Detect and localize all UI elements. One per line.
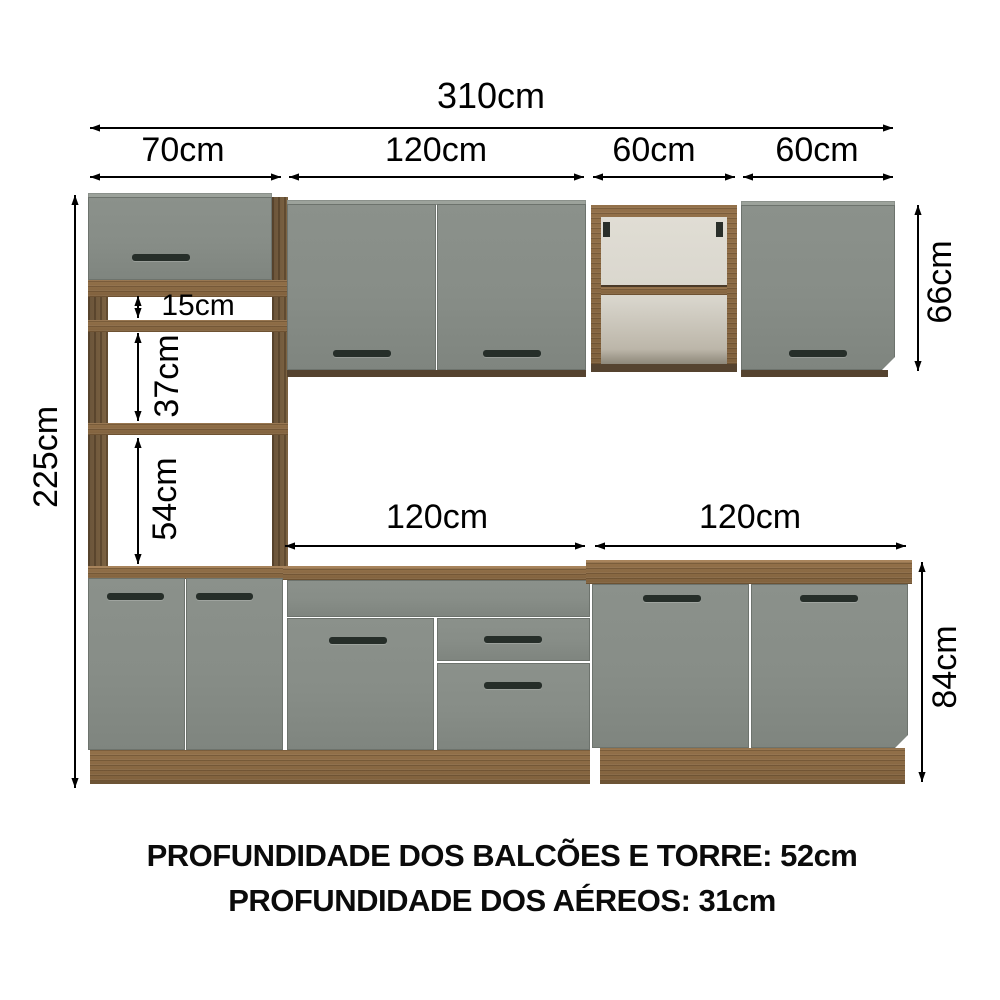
upper-center-door-right: [437, 204, 586, 370]
label-upper-open-width: 60cm: [612, 133, 695, 167]
base-center-countertop: [283, 566, 592, 580]
label-tower-width: 70cm: [141, 133, 224, 167]
toe-kick-right: [600, 748, 905, 784]
base-center-drawer-top: [437, 618, 590, 661]
kitchen-dimension-diagram: 310cm 70cm 120cm 60cm 60cm 225cm 15cm 37…: [0, 0, 1000, 1000]
label-base-center-width: 120cm: [386, 500, 488, 534]
open-cabinet-hinge-right: [716, 222, 723, 237]
label-upper-height: 66cm: [923, 240, 957, 323]
base-right-door-right: [751, 584, 908, 748]
upper-center-door-right-handle: [483, 350, 541, 357]
label-total-width: 310cm: [437, 78, 545, 114]
base-right-door-left: [592, 584, 749, 748]
label-niche-top: 15cm: [161, 291, 234, 321]
upper-center-bottom-edge: [287, 370, 586, 377]
open-cabinet-hinge-left: [603, 222, 610, 237]
label-niche-bottom: 54cm: [148, 457, 182, 540]
upper-center-door-left: [287, 204, 436, 370]
tower-shelf-lower: [88, 423, 288, 435]
base-center-door-handle: [329, 637, 387, 644]
upper-right-door: [741, 205, 895, 370]
open-upper-cabinet-bottom-edge: [591, 364, 737, 372]
label-base-height: 84cm: [928, 625, 962, 708]
base-center-top-panel: [287, 580, 590, 617]
tower-top-door-handle: [132, 254, 190, 261]
upper-right-door-handle: [789, 350, 847, 357]
tower-base-door-left-handle: [107, 593, 164, 600]
tower-base-door-right-handle: [196, 593, 253, 600]
label-total-height: 225cm: [29, 406, 63, 508]
open-upper-cabinet-shelf: [601, 285, 727, 295]
upper-center-door-left-handle: [333, 350, 391, 357]
base-center-drawer-bottom-handle: [484, 682, 542, 689]
base-right-door-right-handle: [800, 595, 858, 602]
upper-right-bottom-edge: [741, 370, 888, 377]
footer-depth-uppers: PROFUNDIDADE DOS AÉREOS: 31cm: [228, 883, 776, 919]
tower-base-door-left: [88, 578, 185, 750]
label-niche-middle: 37cm: [150, 334, 184, 417]
base-right-door-left-handle: [643, 595, 701, 602]
tower-top-door: [88, 197, 272, 280]
label-upper-right-width: 60cm: [775, 133, 858, 167]
base-right-countertop: [586, 560, 912, 584]
toe-kick-left: [90, 750, 590, 784]
label-upper-center-width: 120cm: [385, 133, 487, 167]
label-base-right-width: 120cm: [699, 500, 801, 534]
base-center-drawer-top-handle: [484, 636, 542, 643]
footer-depth-base-tower: PROFUNDIDADE DOS BALCÕES E TORRE: 52cm: [147, 838, 858, 874]
base-center-door: [287, 618, 434, 750]
tower-right-column: [272, 197, 288, 566]
tower-base-door-right: [186, 578, 283, 750]
base-center-drawer-bottom: [437, 663, 590, 750]
